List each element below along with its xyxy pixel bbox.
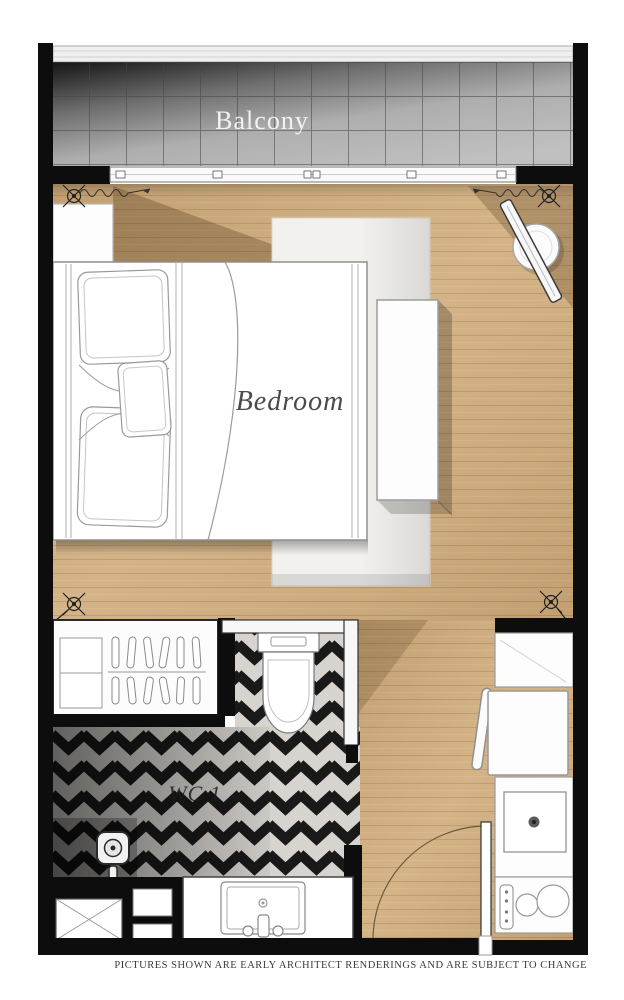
sliding-door <box>53 166 573 184</box>
floor-plan: Balcony Bedroom WC 1 PICTURES SHOWN ARE … <box>0 0 624 1000</box>
wc-door <box>344 620 358 745</box>
dining-table <box>488 691 568 775</box>
nightstand <box>53 204 113 262</box>
door-threshold <box>479 936 492 955</box>
vanity-zone <box>53 877 353 940</box>
cooktop <box>495 877 573 933</box>
toilet <box>258 633 319 733</box>
wardrobe <box>53 618 235 730</box>
balcony-railing <box>53 46 573 62</box>
shaft-cross <box>56 899 122 940</box>
entrance-door <box>481 822 491 943</box>
refrigerator <box>495 633 573 687</box>
floor-plan-drawing <box>0 0 624 1000</box>
console-table <box>377 300 452 516</box>
kitchen-sink <box>495 777 573 877</box>
balcony-area <box>53 46 573 166</box>
double-bed <box>53 262 368 555</box>
vanity-sink <box>183 877 353 940</box>
